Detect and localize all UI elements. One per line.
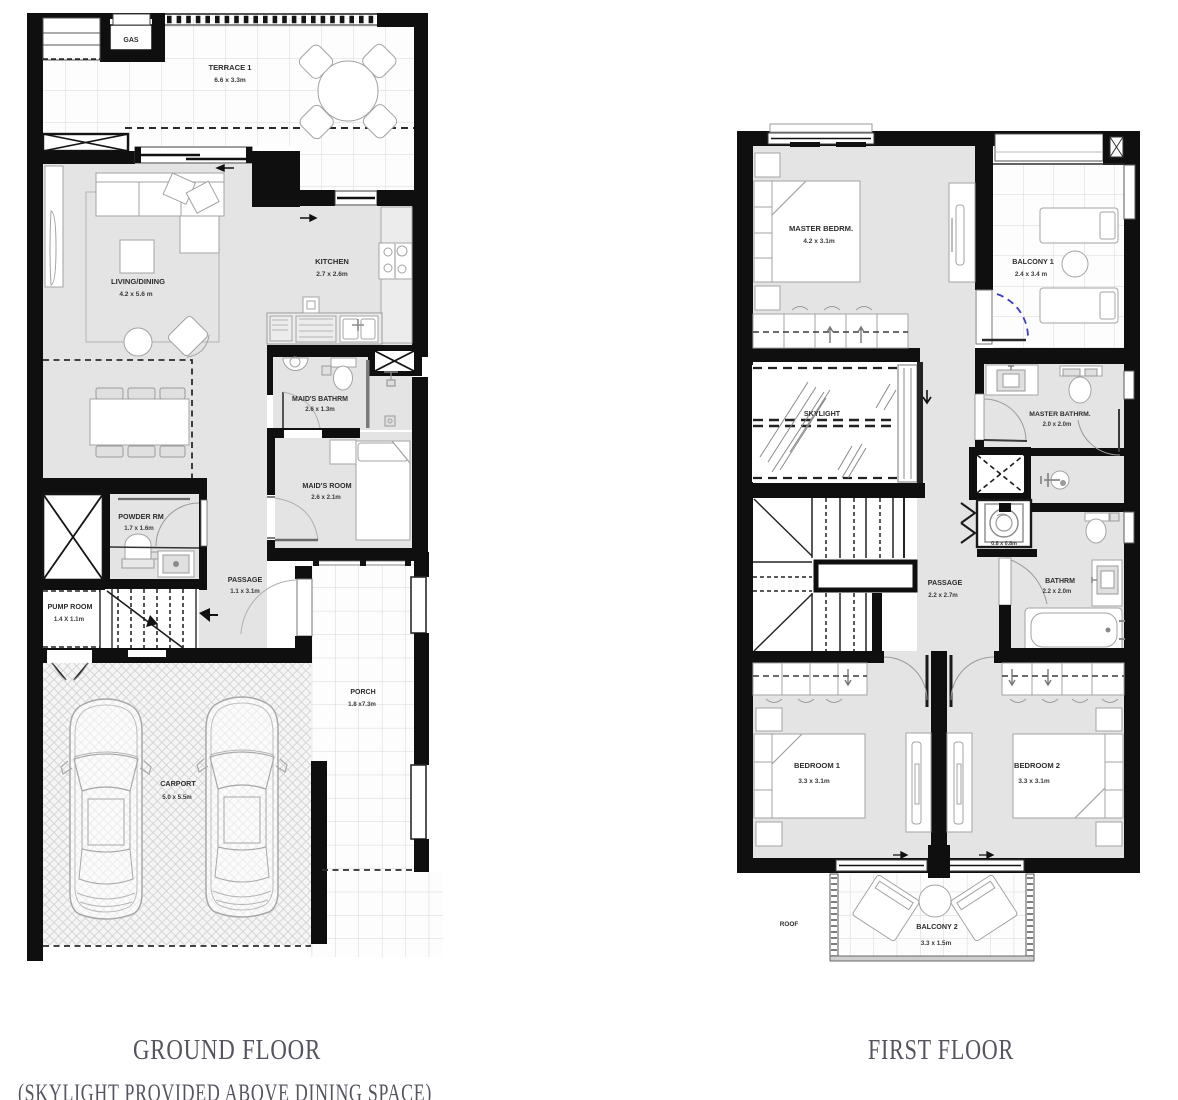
- svg-text:CARPORT: CARPORT: [160, 779, 196, 788]
- svg-text:PASSAGE: PASSAGE: [228, 575, 263, 584]
- svg-text:PASSAGE: PASSAGE: [928, 578, 963, 587]
- svg-text:SKYLIGHT: SKYLIGHT: [804, 409, 841, 418]
- svg-text:PUMP ROOM: PUMP ROOM: [48, 602, 93, 611]
- svg-text:GROUND FLOOR: GROUND FLOOR: [133, 1034, 321, 1066]
- svg-text:GAS: GAS: [123, 37, 139, 44]
- svg-text:3.3 x 1.5m: 3.3 x 1.5m: [921, 940, 952, 947]
- svg-text:1.1 x 3.1m: 1.1 x 3.1m: [230, 588, 260, 595]
- svg-text:MASTER BATHRM.: MASTER BATHRM.: [1029, 411, 1091, 418]
- svg-text:1.7 x 1.6m: 1.7 x 1.6m: [124, 525, 154, 532]
- svg-text:2.2 x 2.0m: 2.2 x 2.0m: [1043, 589, 1072, 595]
- svg-text:6.6 x 3.3m: 6.6 x 3.3m: [214, 77, 246, 84]
- svg-text:BEDROOM 1: BEDROOM 1: [794, 761, 841, 770]
- svg-text:4.2 x 5.6 m: 4.2 x 5.6 m: [119, 291, 152, 298]
- svg-text:1.8 x7.3m: 1.8 x7.3m: [348, 701, 376, 708]
- svg-text:POWDER RM: POWDER RM: [118, 512, 164, 521]
- svg-text:TERRACE 1: TERRACE 1: [208, 63, 252, 72]
- svg-text:2.6 x 2.1m: 2.6 x 2.1m: [311, 494, 341, 501]
- svg-text:(SKYLIGHT PROVIDED ABOVE DININ: (SKYLIGHT PROVIDED ABOVE DINING SPACE): [18, 1080, 432, 1100]
- svg-text:2.6 x 1.3m: 2.6 x 1.3m: [305, 406, 335, 413]
- svg-text:MAID'S ROOM: MAID'S ROOM: [302, 481, 351, 490]
- svg-text:BALCONY 2: BALCONY 2: [916, 922, 957, 931]
- svg-text:3.3 x 3.1m: 3.3 x 3.1m: [798, 778, 830, 785]
- svg-text:1.4 X 1.1m: 1.4 X 1.1m: [54, 616, 85, 623]
- svg-text:FIRST FLOOR: FIRST FLOOR: [868, 1034, 1014, 1066]
- svg-text:BALCONY 1: BALCONY 1: [1012, 257, 1053, 266]
- svg-text:BATHRM: BATHRM: [1045, 578, 1075, 585]
- svg-text:4.2 x 3.1m: 4.2 x 3.1m: [803, 238, 835, 245]
- svg-text:2.4 x 3.4 m: 2.4 x 3.4 m: [1015, 271, 1048, 278]
- svg-text:3.3 x 3.1m: 3.3 x 3.1m: [1018, 778, 1050, 785]
- svg-text:LIVING/DINING: LIVING/DINING: [111, 277, 165, 286]
- svg-text:5.0 x 5.5m: 5.0 x 5.5m: [162, 794, 192, 801]
- svg-text:2.7 x 2.6m: 2.7 x 2.6m: [316, 271, 348, 278]
- svg-text:2.0 x 2.0m: 2.0 x 2.0m: [1043, 422, 1072, 428]
- svg-text:MASTER BEDRM.: MASTER BEDRM.: [789, 224, 853, 233]
- svg-text:ROOF: ROOF: [780, 921, 799, 928]
- svg-text:PORCH: PORCH: [350, 689, 375, 696]
- svg-text:0.8 x 0.8m: 0.8 x 0.8m: [991, 541, 1017, 547]
- svg-text:2.2 x 2.7m: 2.2 x 2.7m: [928, 592, 958, 599]
- svg-text:MAID'S BATHRM: MAID'S BATHRM: [292, 396, 348, 403]
- svg-text:KITCHEN: KITCHEN: [315, 257, 349, 266]
- svg-text:BEDROOM 2: BEDROOM 2: [1014, 761, 1060, 770]
